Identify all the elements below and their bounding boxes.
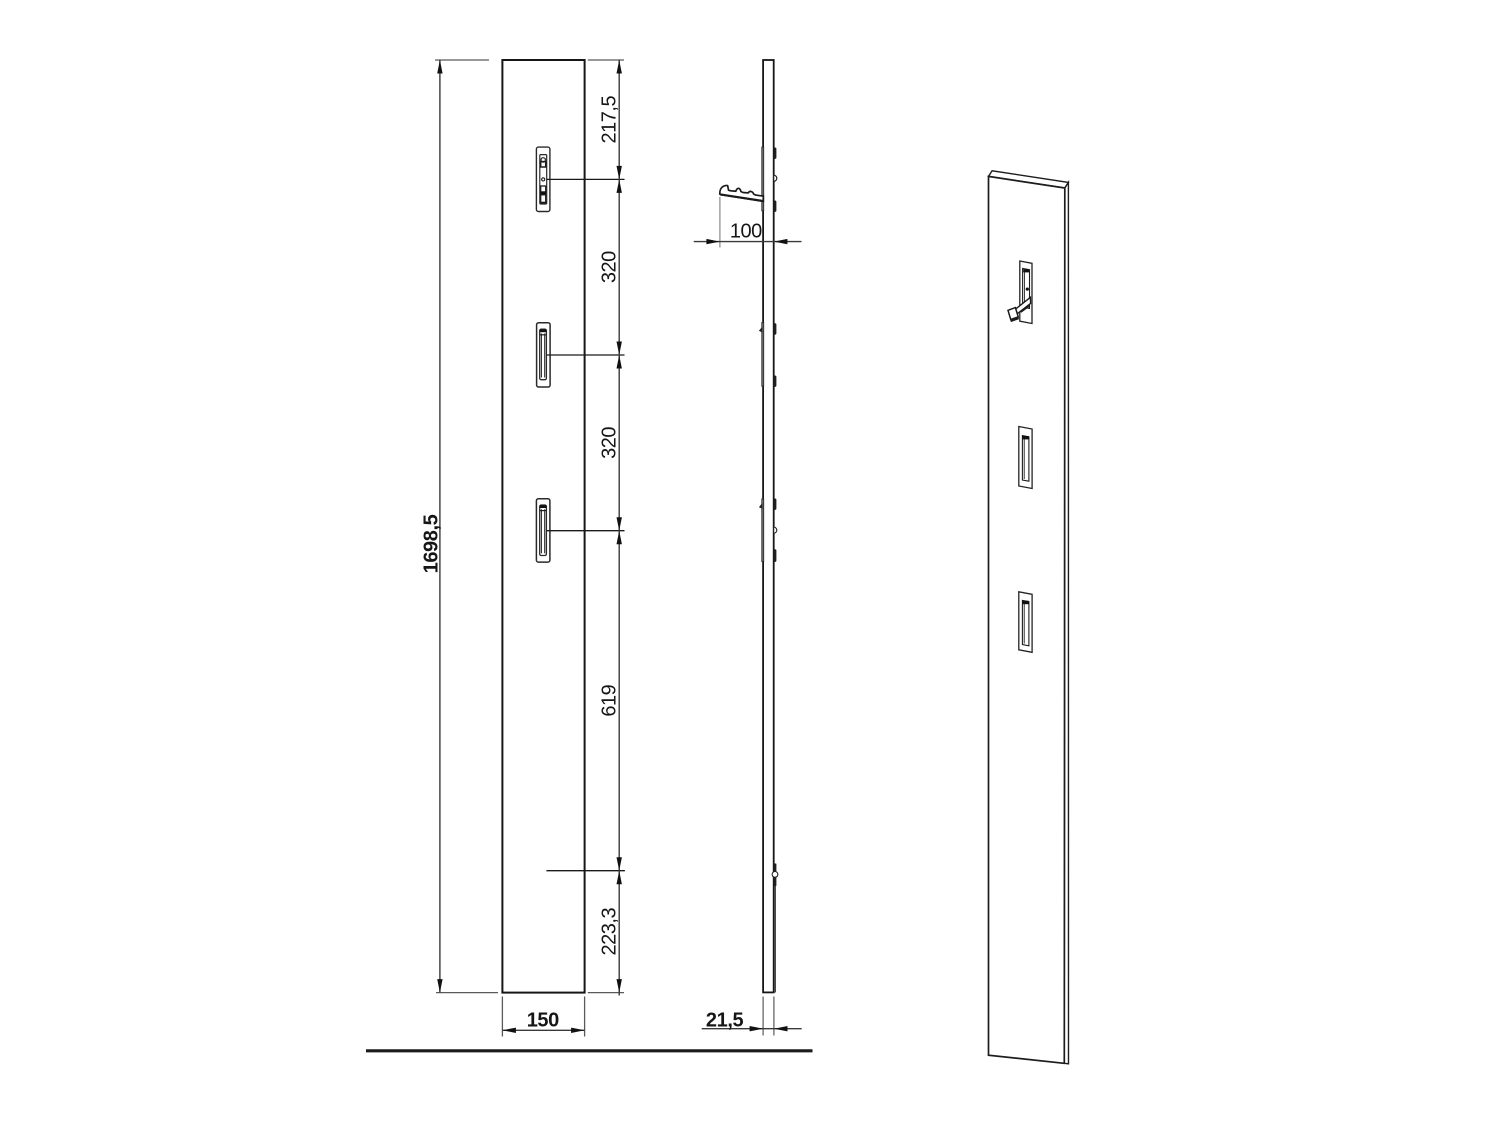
svg-text:619: 619: [598, 684, 620, 716]
svg-text:1698,5: 1698,5: [421, 514, 443, 573]
svg-text:100: 100: [730, 221, 762, 243]
svg-text:21,5: 21,5: [706, 1009, 744, 1031]
svg-text:223,3: 223,3: [598, 908, 620, 956]
svg-text:217,5: 217,5: [598, 96, 620, 144]
svg-text:320: 320: [598, 251, 620, 283]
svg-text:320: 320: [598, 427, 620, 459]
svg-text:150: 150: [527, 1010, 559, 1032]
